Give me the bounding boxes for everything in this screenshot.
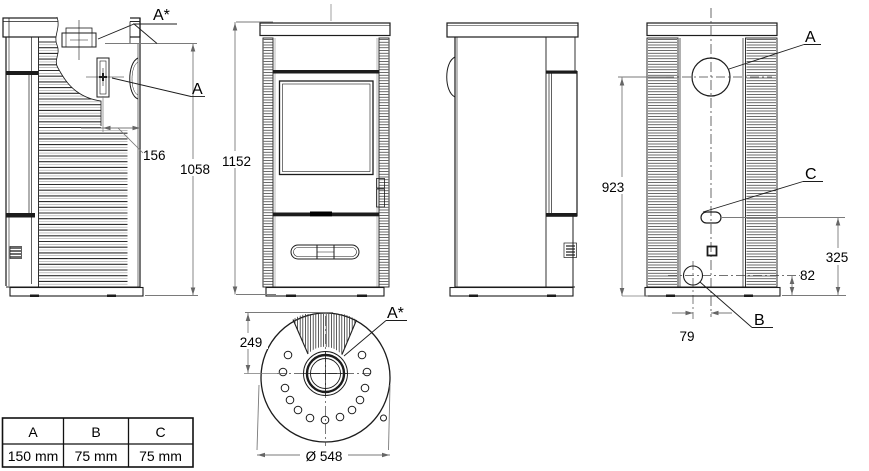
dim-82-text: 82: [800, 268, 815, 283]
door-hinge-right: [564, 243, 577, 258]
table-header-c: C: [155, 424, 165, 440]
back-view-label-b: B: [754, 312, 765, 329]
rim-detail: [381, 415, 387, 421]
table-header-b: B: [91, 424, 100, 440]
side-view-label-a-star: A*: [153, 7, 170, 24]
dimension-texts: 1058 1152 156 923 325 82 79 249 Ø 548: [143, 148, 855, 464]
rear-outlet-bump-right: [447, 57, 455, 97]
table-value-b: 75 mm: [75, 448, 118, 464]
side-view-label-a: A: [192, 81, 203, 98]
dim-923-text: 923: [602, 180, 625, 195]
top-flue-collar: [303, 351, 348, 396]
stove-dimension-drawing: 1058 1152 156 923 325 82 79 249 Ø 548 A*…: [0, 0, 869, 471]
door-hinge: [10, 247, 22, 259]
cable-inlet-square: [708, 247, 717, 256]
dim-diameter-text: Ø 548: [306, 449, 343, 464]
back-view-label-c: C: [805, 166, 817, 183]
back-view: [645, 8, 800, 319]
front-right-fins: [380, 40, 389, 285]
convection-holes: [279, 351, 371, 424]
side-view-right: [447, 23, 578, 297]
dim-79-text: 79: [679, 329, 694, 344]
connection-size-table: A B C 150 mm 75 mm 75 mm: [3, 418, 194, 467]
back-left-fins: [648, 40, 677, 285]
dim-1152-text: 1152: [222, 154, 251, 169]
table-header-a: A: [28, 424, 38, 440]
table-value-a: 150 mm: [8, 448, 59, 464]
door-glass: [280, 81, 374, 175]
ash-drawer-handle: [291, 245, 359, 259]
dim-325-text: 325: [826, 250, 849, 265]
technical-drawing-page: 1058 1152 156 923 325 82 79 249 Ø 548 A*…: [0, 0, 869, 471]
label-leaders: [98, 24, 823, 356]
dim-1058-text: 1058: [180, 162, 210, 177]
dimension-arrowheads: [103, 23, 840, 457]
front-upper-band: [273, 70, 379, 74]
table-value-c: 75 mm: [139, 448, 182, 464]
dim-156-text: 156: [143, 148, 166, 163]
front-view: [260, 4, 390, 297]
back-right-fins: [747, 40, 777, 285]
side-door-top-frame: [6, 71, 38, 75]
side-view-left: [3, 17, 143, 297]
dim-249-text: 249: [240, 335, 263, 350]
front-left-fins: [264, 40, 273, 285]
side-door-bottom-frame: [6, 213, 35, 218]
top-view-label-a-star: A*: [387, 305, 404, 322]
back-view-label-a: A: [805, 29, 816, 46]
